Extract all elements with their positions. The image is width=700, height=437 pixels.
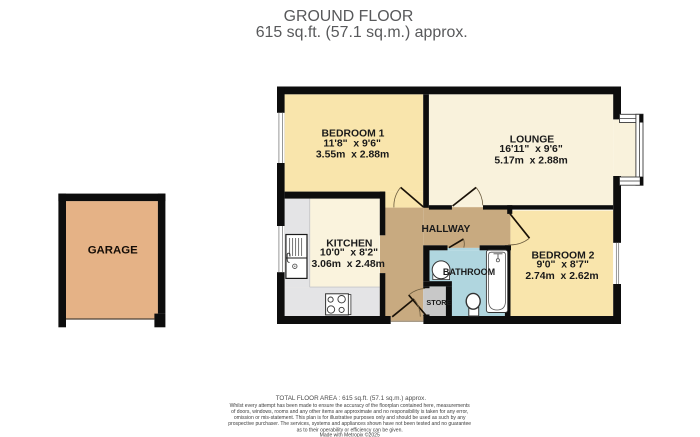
svg-text:5.17m x 2.88m: 5.17m x 2.88m <box>494 156 567 167</box>
svg-text:GARAGE: GARAGE <box>88 244 138 256</box>
svg-text:TOTAL FLOOR AREA : 615 sq.ft.: TOTAL FLOOR AREA : 615 sq.ft. (57.1 sq.m… <box>276 395 427 402</box>
svg-text:HALLWAY: HALLWAY <box>421 224 470 235</box>
svg-text:of doors, windows, rooms and a: of doors, windows, rooms and any other i… <box>231 409 468 415</box>
svg-text:3.06m x 2.48m: 3.06m x 2.48m <box>312 259 385 270</box>
svg-text:GROUND FLOOR: GROUND FLOOR <box>284 8 414 25</box>
svg-text:16'11" x 9'6": 16'11" x 9'6" <box>499 144 562 155</box>
svg-text:Made with Metropix ©2025: Made with Metropix ©2025 <box>320 432 380 437</box>
svg-text:3.55m x 2.88m: 3.55m x 2.88m <box>316 149 389 160</box>
svg-text:STORE: STORE <box>426 298 451 307</box>
svg-text:omission or mis-statement. Thi: omission or mis-statement. This plan is … <box>234 415 466 421</box>
svg-text:11'8" x 9'6": 11'8" x 9'6" <box>323 138 381 149</box>
svg-text:2.74m x 2.62m: 2.74m x 2.62m <box>525 271 598 282</box>
svg-text:615 sq.ft. (57.1 sq.m.) approx: 615 sq.ft. (57.1 sq.m.) approx. <box>256 24 468 41</box>
svg-text:9'0" x 8'7": 9'0" x 8'7" <box>537 260 589 271</box>
svg-text:prospective purchaser. The ser: prospective purchaser. The services, sys… <box>228 421 471 427</box>
svg-text:10'0" x 8'2": 10'0" x 8'2" <box>320 248 378 259</box>
svg-text:Whilst every attempt has been: Whilst every attempt has been made to en… <box>230 403 471 409</box>
svg-text:BATHROOM: BATHROOM <box>443 267 495 277</box>
